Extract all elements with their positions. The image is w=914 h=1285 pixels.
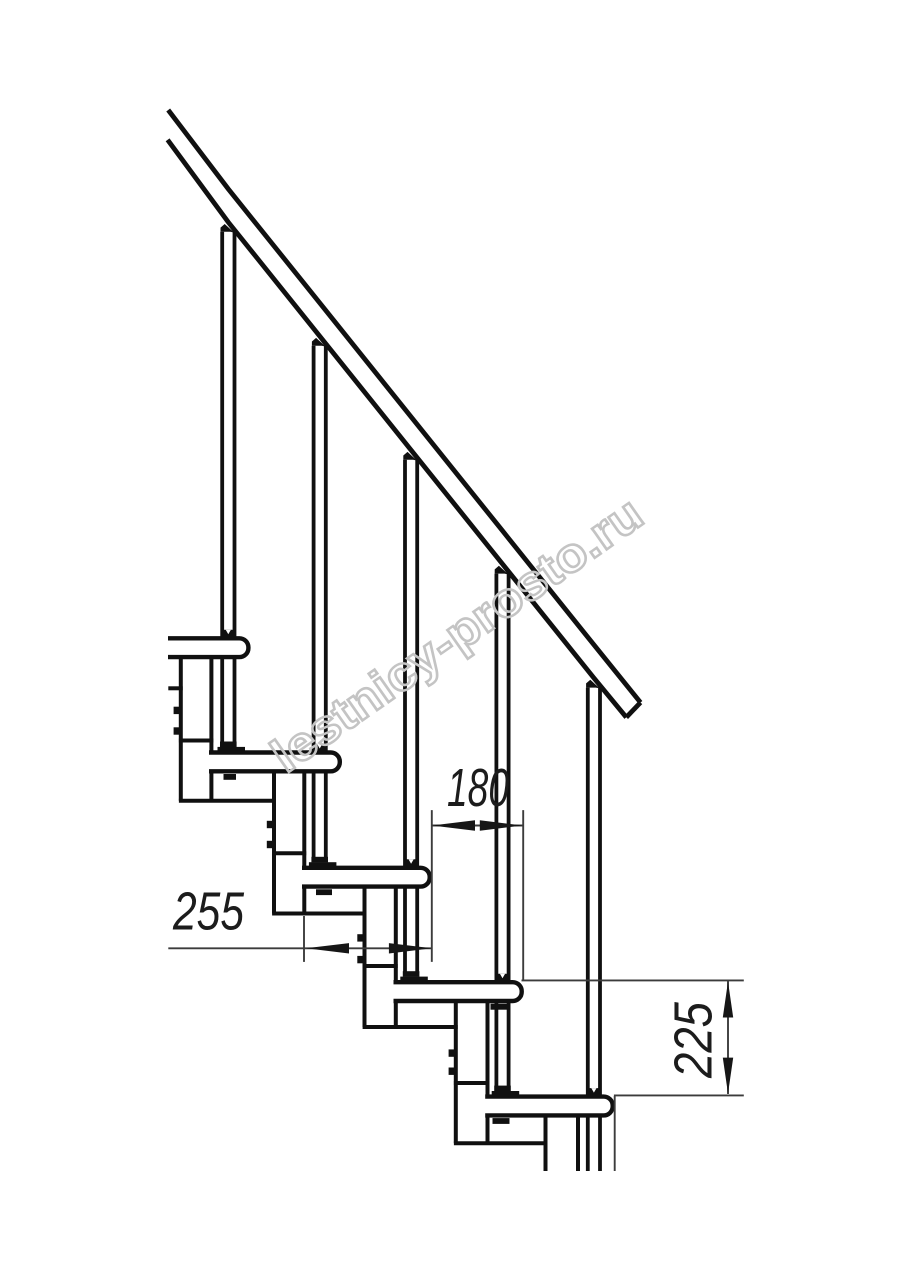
svg-text:255: 255 — [172, 882, 245, 942]
svg-text:225: 225 — [664, 1001, 724, 1079]
svg-text:180: 180 — [447, 758, 509, 818]
